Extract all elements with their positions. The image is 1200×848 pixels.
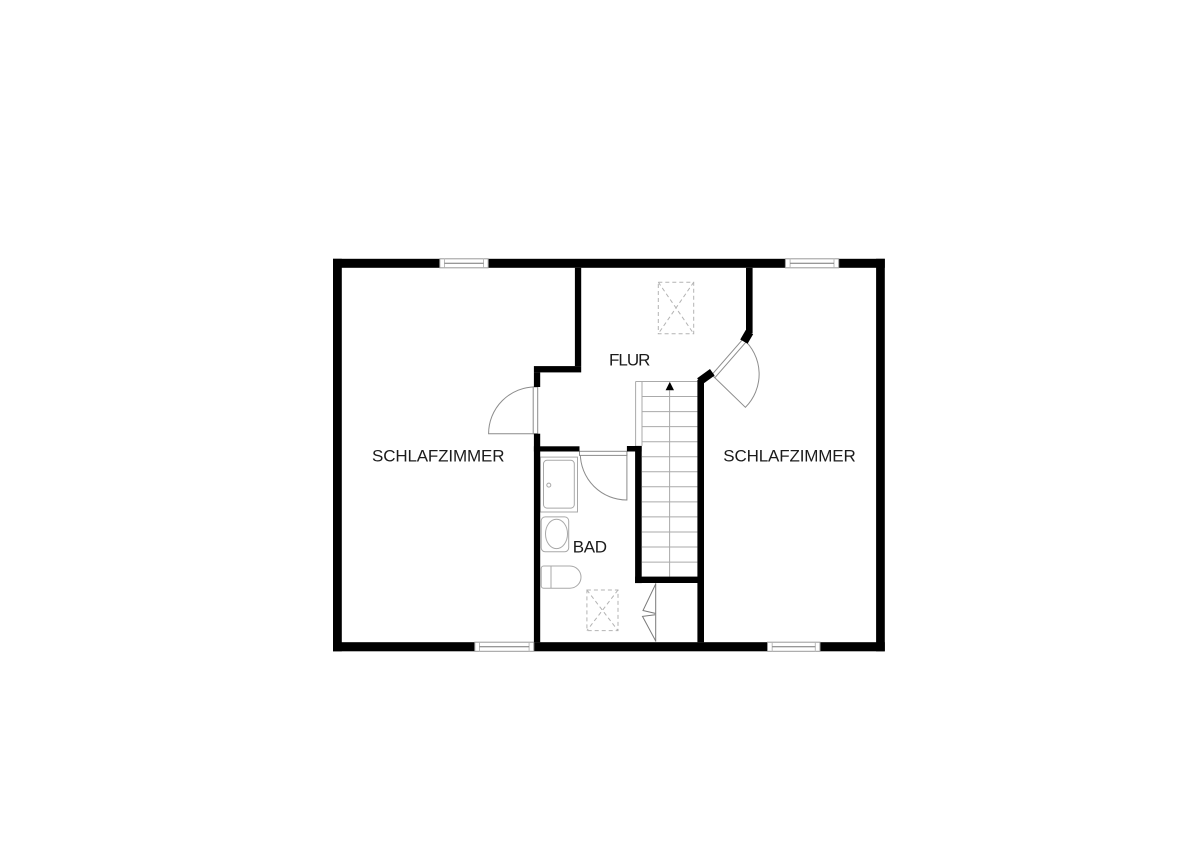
svg-text:FLUR: FLUR xyxy=(609,350,650,369)
svg-text:BAD: BAD xyxy=(573,537,607,556)
svg-text:SCHLAFZIMMER: SCHLAFZIMMER xyxy=(723,447,855,466)
svg-text:SCHLAFZIMMER: SCHLAFZIMMER xyxy=(372,447,504,466)
